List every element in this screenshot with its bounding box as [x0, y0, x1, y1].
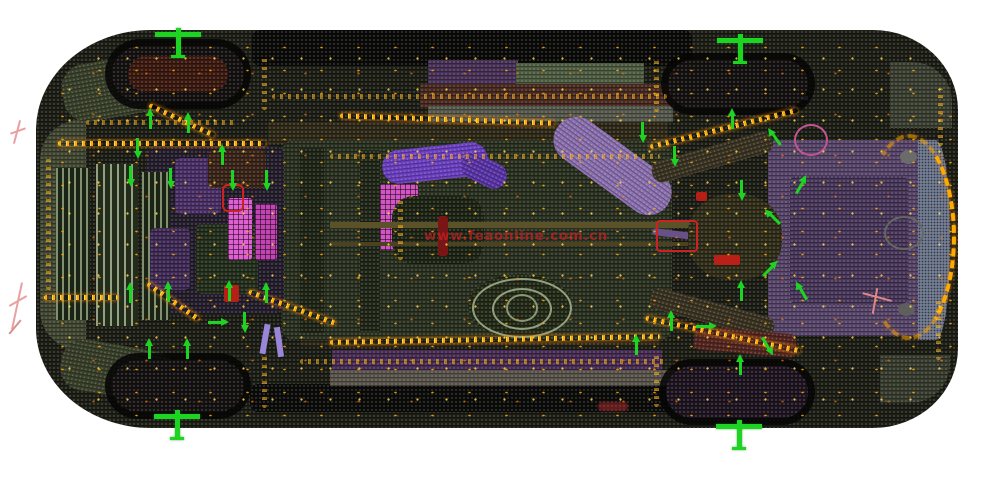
red-rear-bar [714, 255, 740, 265]
weld-seam-11 [262, 352, 267, 408]
weld-seam-10 [262, 54, 267, 110]
load-arrow-icon [240, 312, 249, 333]
load-arrow-icon [126, 282, 135, 303]
pink-bushing-ring [794, 124, 828, 156]
watermark-text: www.feaonline.com.cn [424, 228, 608, 244]
fea-model-viewport[interactable]: www.feaonline.com.cn [0, 0, 995, 489]
wheel-center-marker-icon [716, 420, 762, 450]
red-rear-arm [656, 220, 698, 252]
wheel-center-marker-icon [717, 34, 763, 64]
weld-seam-16 [398, 198, 403, 260]
weld-seam-2 [272, 94, 667, 99]
red-rear-dot [696, 192, 707, 201]
load-arrow-icon [146, 108, 155, 129]
wheel-center-marker-icon [154, 410, 200, 440]
load-arrow-icon [164, 281, 173, 302]
magenta-reservoir-2 [255, 204, 277, 260]
tire-rear-top [668, 60, 808, 108]
weld-seam-13 [654, 355, 659, 407]
upper-sill-purple-strip [428, 60, 518, 84]
lower-sill-gray-strip [330, 370, 675, 386]
weld-seam-21 [936, 300, 941, 360]
weld-seam-7 [44, 295, 118, 300]
weld-seam-12 [654, 57, 659, 112]
load-arrow-icon [225, 280, 234, 301]
tire-front-top-tread [128, 56, 228, 92]
rear-gray-grommet-1 [900, 150, 917, 164]
load-arrow-icon [145, 338, 154, 359]
watermark-smudge [598, 402, 628, 411]
fuel-tank-ring-inner [506, 294, 538, 322]
load-arrow-icon [667, 310, 676, 331]
load-arrow-icon [737, 280, 746, 301]
weld-seam-4 [300, 359, 665, 364]
load-arrow-icon [133, 138, 142, 159]
spare-wheel-ring [884, 216, 924, 250]
weld-seam-5 [330, 154, 660, 159]
weld-seam-6 [58, 141, 266, 146]
load-arrow-icon [737, 180, 746, 201]
weld-seam-9 [46, 158, 51, 290]
load-arrow-icon [126, 166, 135, 187]
rear-gray-grommet-2 [898, 303, 915, 316]
load-arrow-icon [728, 108, 737, 129]
load-arrow-icon [208, 318, 229, 327]
wheel-center-marker-icon [155, 28, 201, 58]
load-arrow-icon [632, 334, 641, 355]
floor-longitudinal-rail-2 [360, 150, 380, 332]
load-arrow-icon [166, 168, 175, 189]
load-arrow-icon [262, 170, 271, 191]
load-arrow-icon [736, 354, 745, 375]
weld-seam-20 [938, 88, 943, 146]
load-arrow-icon [183, 338, 192, 359]
engine-brown-component [208, 150, 266, 188]
load-arrow-icon [184, 112, 193, 133]
load-arrow-icon [638, 122, 647, 143]
load-arrow-icon [218, 144, 227, 165]
floor-longitudinal-rail-1 [300, 148, 324, 333]
load-arrow-icon [670, 146, 679, 167]
load-arrow-icon [262, 282, 271, 303]
tire-front-bottom [112, 360, 244, 412]
load-arrow-icon [228, 170, 237, 191]
weld-seam-8 [86, 120, 236, 125]
load-arrow-icon [696, 322, 717, 331]
upper-sill-green-strip [516, 63, 644, 85]
